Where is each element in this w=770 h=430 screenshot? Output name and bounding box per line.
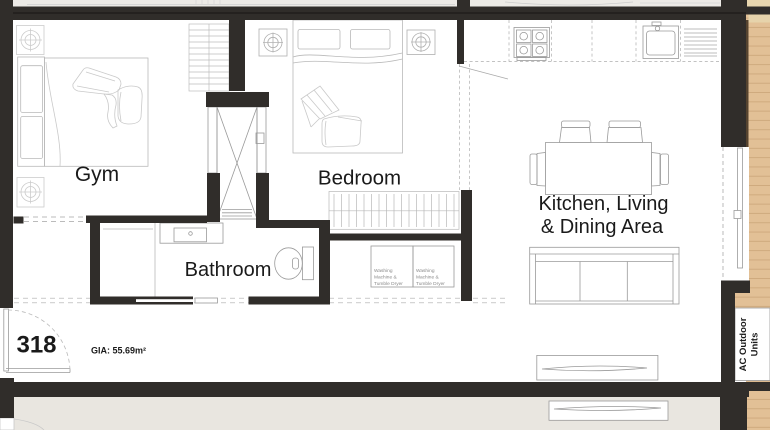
- svg-text:Washing: Washing: [416, 268, 435, 274]
- svg-text:Kitchen, Living: Kitchen, Living: [538, 193, 668, 215]
- svg-text:& Dining Area: & Dining Area: [541, 216, 664, 238]
- svg-text:Tumble Dryer: Tumble Dryer: [374, 281, 403, 287]
- svg-text:Bedroom: Bedroom: [318, 167, 401, 190]
- svg-text:GIA: 55.69m²: GIA: 55.69m²: [91, 346, 146, 356]
- svg-text:Units: Units: [750, 333, 761, 357]
- svg-text:Bathroom: Bathroom: [185, 259, 272, 281]
- svg-text:Gym: Gym: [75, 163, 119, 186]
- svg-text:Machine &: Machine &: [416, 275, 439, 281]
- svg-text:Tumble Dryer: Tumble Dryer: [416, 281, 445, 287]
- svg-text:Machine &: Machine &: [374, 275, 397, 281]
- svg-text:AC Outdoor: AC Outdoor: [738, 317, 749, 371]
- svg-text:318: 318: [16, 332, 56, 359]
- svg-text:Washing: Washing: [374, 268, 393, 274]
